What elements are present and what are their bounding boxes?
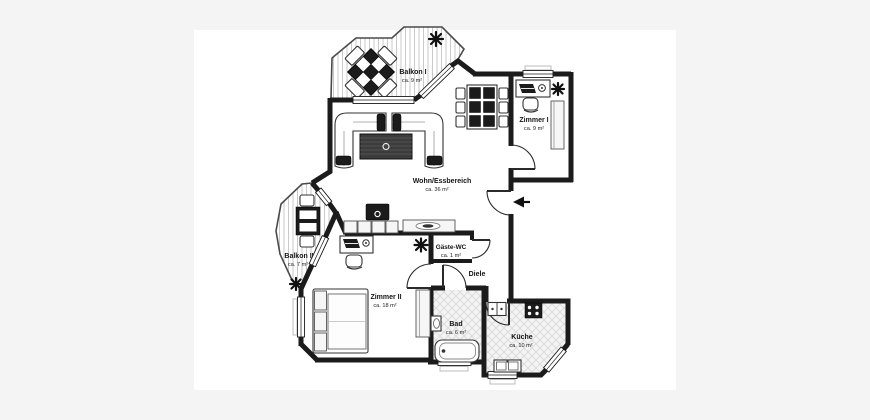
wardrobe-icon [416, 290, 430, 337]
chair-icon [523, 98, 538, 112]
bathtub-icon [435, 340, 479, 362]
wohn-essbereich-label: Wohn/Essbereich [413, 178, 472, 185]
fridge-icon [488, 303, 506, 316]
window [488, 372, 517, 385]
diele-label: Diele [469, 271, 486, 278]
window [353, 97, 414, 104]
kueche-label: Küche [511, 334, 533, 341]
zimmer-2-label: Zimmer II [370, 294, 401, 301]
sink-icon [494, 360, 521, 372]
floor-plan-page: Balkon I ca. 9 m² Balkon II ca. 7 m² [0, 0, 870, 420]
sink-icon [431, 316, 441, 331]
coffee-table-icon [360, 134, 412, 159]
zimmer-1-area: ca. 9 m² [524, 126, 544, 132]
balkon-1-area: ca. 9 m² [402, 78, 422, 84]
kueche-area: ca. 10 m² [509, 343, 532, 349]
gaeste-wc-label: Gäste-WC [436, 244, 467, 251]
bed-icon [313, 289, 368, 353]
window [293, 297, 305, 337]
balkon-2-area: ca. 7 m² [288, 262, 308, 268]
stove-icon [525, 303, 542, 318]
zimmer-2-area: ca. 18 m² [373, 303, 396, 309]
room-diele: Diele [469, 271, 486, 278]
zimmer-1-label: Zimmer I [519, 117, 548, 124]
plant-icon [429, 32, 443, 46]
bad-area: ca. 6 m² [446, 330, 466, 336]
wohn-essbereich-area: ca. 36 m² [425, 187, 448, 193]
gaeste-wc-area: ca. 1 m² [441, 253, 461, 259]
plant-icon [552, 83, 564, 95]
balkon-1-label: Balkon I [399, 69, 426, 76]
plant-icon [415, 239, 428, 252]
balkon-2-label: Balkon II [284, 253, 313, 260]
desk-icon [340, 236, 373, 253]
bad-label: Bad [449, 321, 462, 328]
sideboard-icon [403, 220, 455, 232]
chair-icon [346, 255, 362, 269]
wardrobe-icon [551, 101, 564, 149]
window [523, 66, 553, 78]
dining-table-icon [456, 85, 508, 129]
desk-icon [516, 80, 550, 97]
floor-plan-svg: Balkon I ca. 9 m² Balkon II ca. 7 m² [0, 0, 870, 420]
